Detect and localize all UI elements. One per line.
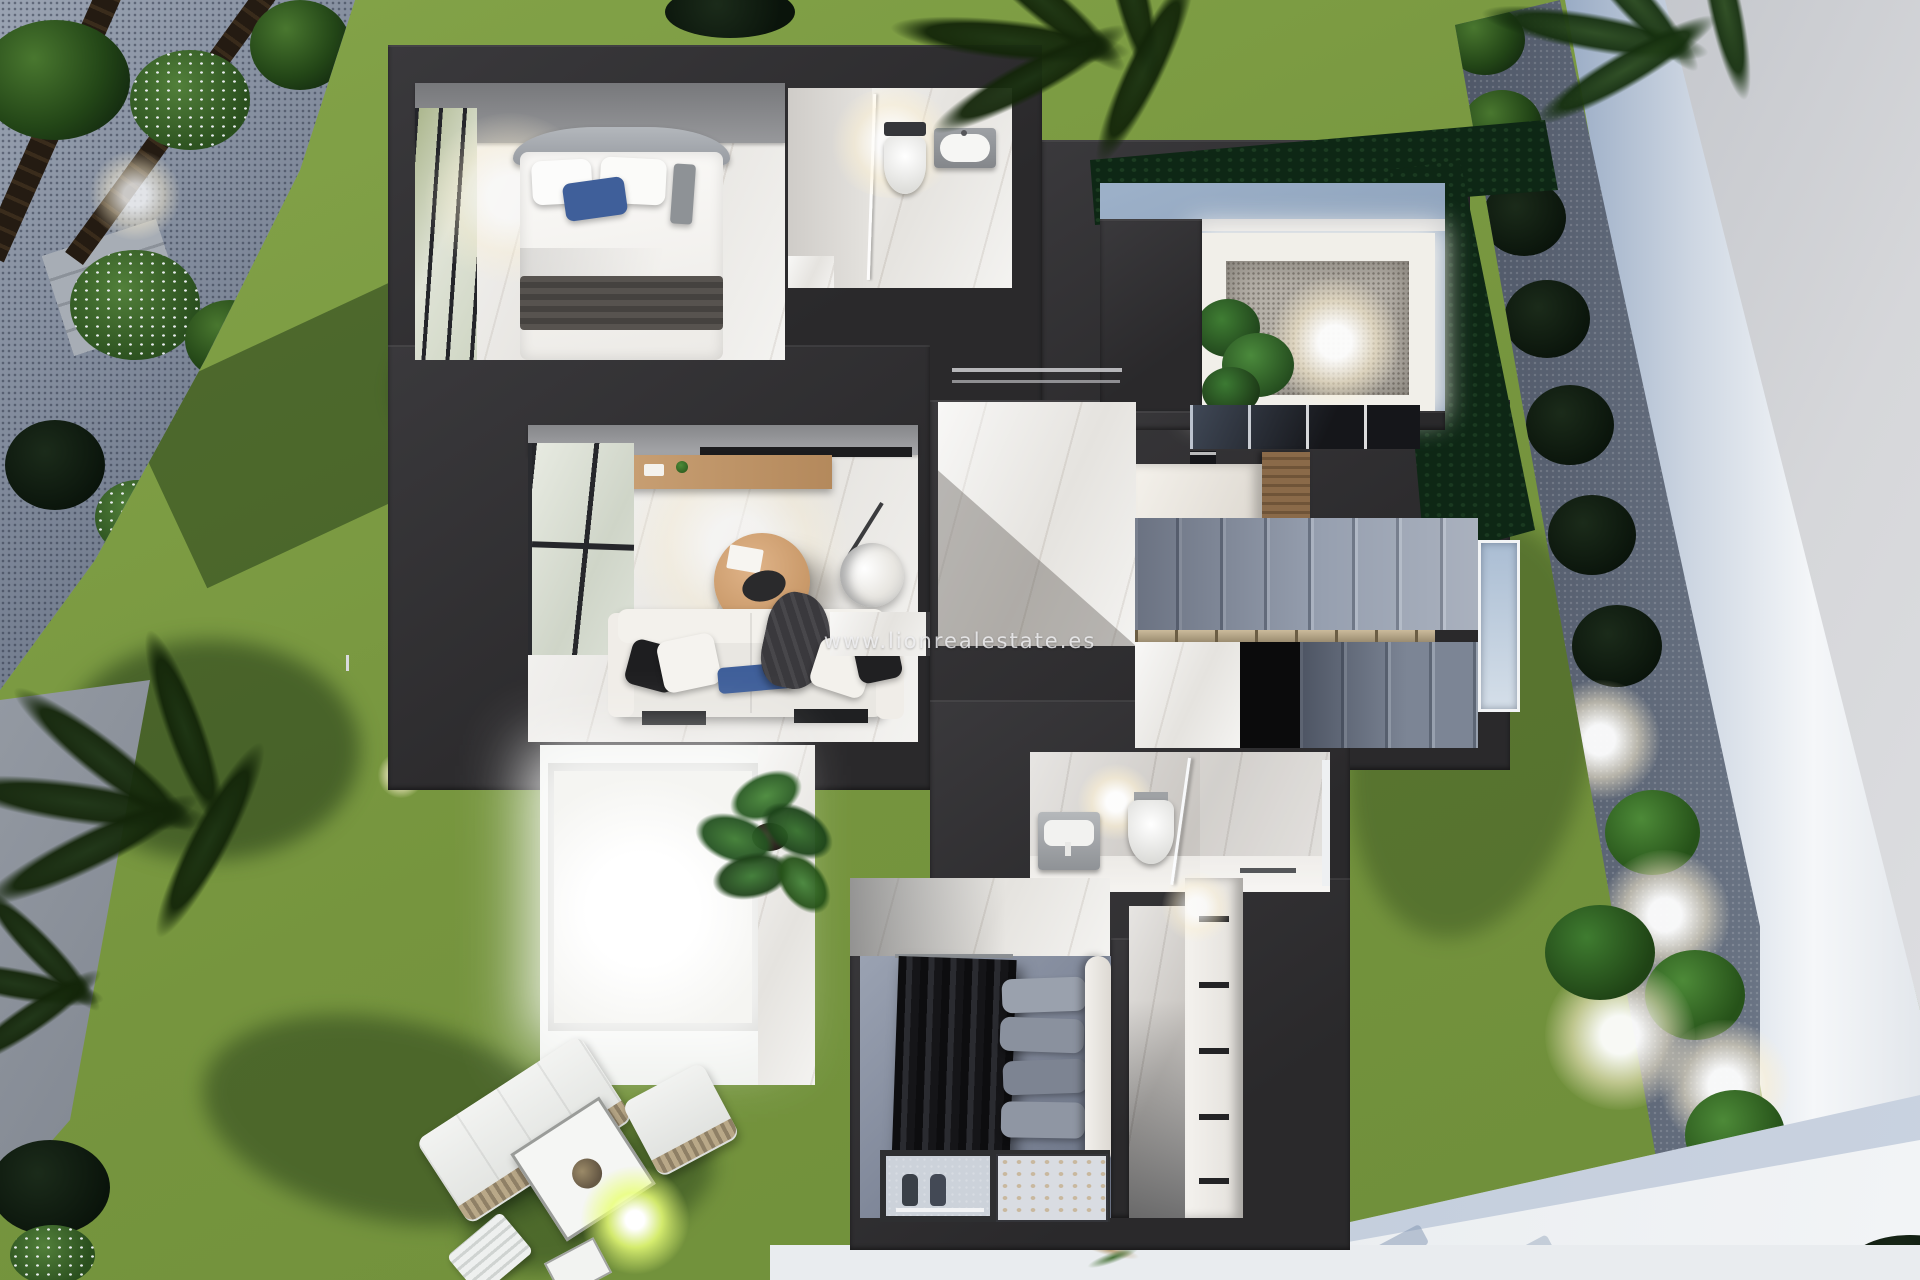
drawer-handle [1199, 1114, 1229, 1120]
bed-throw-blanket [520, 276, 723, 330]
sink-tap [1065, 842, 1071, 856]
toilet [1128, 800, 1174, 864]
overhanging-bush [665, 0, 795, 38]
stairs-shade [1135, 518, 1478, 630]
window-mullion [532, 541, 634, 551]
bathroom-bottom [1030, 752, 1330, 892]
hallway-shadow [938, 402, 1136, 646]
folded-cushion [999, 1017, 1084, 1054]
shoe [930, 1174, 946, 1206]
hanging-chair [840, 543, 904, 607]
decor-plant [676, 461, 688, 473]
shoe-pedestal [896, 1208, 984, 1212]
stairs-window [1478, 540, 1520, 712]
stairwell-void [1240, 642, 1300, 748]
bed-mattress [520, 152, 723, 360]
flowering-bush [130, 50, 250, 150]
sink-tap [961, 130, 967, 136]
staircase [1135, 518, 1515, 748]
bush [1526, 385, 1614, 465]
wall-shadow [850, 878, 1110, 956]
doorway [788, 256, 834, 288]
watermark: www.lionrealestate.es [824, 629, 1097, 653]
blue-accent-pillow [562, 176, 629, 222]
gray-drape [670, 163, 696, 224]
upholstered-bench-edge [1085, 956, 1111, 1166]
entrance-courtyard [1100, 183, 1445, 430]
shoe-display [880, 1150, 1110, 1222]
bush [250, 0, 350, 90]
leafy-plant [1545, 905, 1655, 1000]
drawer-handle [1199, 1178, 1229, 1184]
partition-wall [1111, 938, 1129, 1218]
dressing-wall [850, 878, 1110, 956]
folded-cushion [1002, 1059, 1087, 1096]
courtyard-wall [1100, 219, 1202, 415]
bush [1572, 605, 1662, 687]
shower-area [1200, 752, 1330, 892]
floor-rug-strip [642, 711, 706, 725]
wall-shadow [1129, 906, 1185, 1218]
floorplan-3d-render: www.lionrealestate.es [0, 0, 1920, 1280]
cushion-stack [1000, 978, 1090, 1148]
living-room [528, 425, 918, 742]
patterned-mat [996, 1154, 1108, 1222]
courtyard-glow-frame [1200, 233, 1435, 411]
toilet [884, 136, 926, 194]
stairs-landing [1135, 642, 1240, 748]
stairs-shade [1300, 642, 1478, 748]
garden-light-glow [90, 150, 180, 240]
door-frame [1322, 760, 1330, 886]
table-book [726, 544, 764, 574]
bush [5, 420, 105, 510]
bush [0, 20, 130, 140]
shower-drain [1240, 868, 1296, 873]
door-track [952, 368, 1122, 372]
walkway [770, 1245, 1920, 1280]
drawer-handle [1199, 1048, 1229, 1054]
dressing-side-wall [1129, 906, 1185, 1218]
sink-basin [940, 134, 990, 162]
stairs-lower-flight [1300, 642, 1478, 748]
outdoor-lounge-set [400, 1050, 820, 1280]
toilet-cistern [884, 122, 926, 136]
shoe-tray [886, 1156, 990, 1216]
courtyard-light [1270, 277, 1400, 407]
folded-cushion [1001, 1101, 1086, 1138]
bedroom [415, 83, 785, 360]
tv-sideboard [614, 455, 832, 489]
sink-vanity [1038, 812, 1100, 870]
terrace [540, 745, 815, 1085]
shoe [902, 1174, 918, 1206]
dressing-room [850, 878, 1350, 1250]
door-track [952, 380, 1120, 383]
closet-light [1162, 872, 1232, 942]
stair-railing [1135, 630, 1435, 642]
sofa-seam [750, 613, 752, 713]
bush [1548, 495, 1636, 575]
hallway-floor [938, 402, 1136, 646]
bush [1504, 280, 1590, 358]
hanging-clothes [891, 956, 1016, 1172]
duvet-fold [520, 248, 723, 278]
decor-book [644, 464, 664, 476]
flowering-bush [10, 1225, 95, 1280]
terrace-light-panel [554, 771, 752, 1023]
bush [0, 1140, 110, 1235]
skylight-glass [1190, 405, 1420, 449]
floor-rug-strip [794, 709, 868, 723]
flowering-bush [70, 250, 200, 360]
garden-stick-light [346, 655, 349, 671]
stairs-upper-flight [1135, 518, 1478, 630]
bed [513, 127, 730, 360]
drawer-handle [1199, 982, 1229, 988]
folded-cushion [1001, 977, 1086, 1014]
